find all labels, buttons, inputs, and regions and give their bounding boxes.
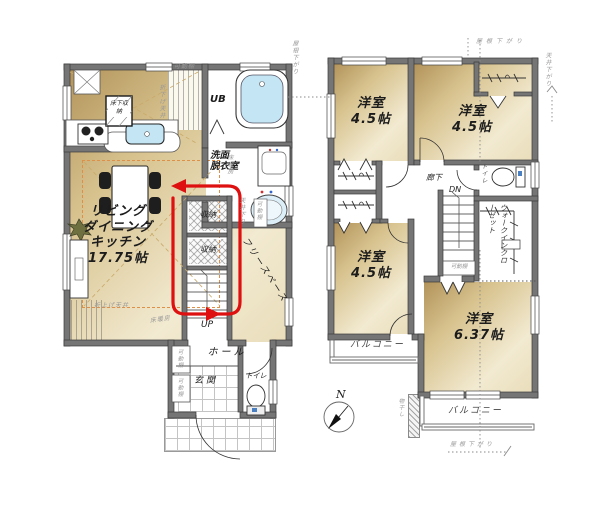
f2-door-arcs <box>386 138 477 336</box>
f1-up-label: UP <box>192 320 222 331</box>
bed4-name: 洋室 <box>434 312 524 328</box>
f2-ann-roof-bottom: 屋根下がり <box>450 441 495 448</box>
f2-corridor-label: 廊下 <box>426 173 442 183</box>
f2-wic-label: ウォークインクローゼット <box>483 204 509 264</box>
f1-ann-ceiling-drop: 天井下り <box>238 197 244 231</box>
f2-bed1-label: 洋室 4.5帖 <box>332 96 410 127</box>
f2-ann-roof-left: 屋根下がり <box>291 40 297 98</box>
washroom-line1: 洗面 <box>210 150 239 161</box>
f1-stove <box>78 124 108 144</box>
floorplan-canvas: リビング ダイニング キッチン 17.75帖 UB 洗面 脱衣室 収納 収納 床… <box>0 0 600 511</box>
f1-entrance-label: 玄関 <box>194 376 218 387</box>
f1-bathtub <box>236 70 288 128</box>
f1-ldk-label: リビング ダイニング キッチン 17.75帖 <box>66 204 170 266</box>
f2-stairs-dn <box>443 192 474 250</box>
f2-toilet-fixture <box>492 167 525 187</box>
f2-ann-monohoshi: 物干し <box>397 398 403 422</box>
bed2-name: 洋室 <box>424 104 520 120</box>
f1-ann-shelf-freespace: 可動棚 <box>255 201 261 227</box>
f1-ann-lowered-ceiling: 折下げ天井 <box>158 84 164 140</box>
bed1-size: 4.5帖 <box>332 112 410 128</box>
compass-icon <box>324 402 354 432</box>
ldk-line1: リビング <box>66 204 170 220</box>
f2-ann-ceiling-right: 天井下がり <box>544 52 550 112</box>
f1-storage-b-label: 収納 <box>189 245 227 255</box>
compass-north-label: N <box>336 388 346 401</box>
f1-ann-shelf-hall-2: 可動棚 <box>176 378 182 402</box>
f2-bed4-label: 洋室 6.37帖 <box>434 312 524 343</box>
bed1-name: 洋室 <box>332 96 410 112</box>
f2-dn-label: DN <box>449 185 461 195</box>
washroom-line2: 脱衣室 <box>210 161 239 172</box>
f1-toilet-label: トイレ <box>243 372 269 380</box>
f1-ub-label: UB <box>210 94 226 106</box>
f1-toilet-fixture <box>247 385 265 415</box>
ldk-size: 17.75帖 <box>66 251 170 267</box>
f2-bed3-label: 洋室 4.5帖 <box>332 250 410 281</box>
f1-hall-label: ホール <box>204 347 250 359</box>
f1-bath-folding-door <box>210 120 224 134</box>
f2-understairs-shelf-label: 可動棚 <box>443 264 475 271</box>
annotation-arrow-bottom <box>504 446 511 456</box>
bed3-name: 洋室 <box>332 250 410 266</box>
ldk-line2: ダイニング <box>66 220 170 236</box>
f1-ann-raised-ceiling: 折上げ天井 <box>94 302 129 309</box>
f2-bed2-label: 洋室 4.5帖 <box>424 104 520 135</box>
f1-storage-a-label: 収納 <box>189 210 227 220</box>
f1-washroom-label: 洗面 脱衣室 <box>210 150 239 173</box>
f1-ann-floor-heating-right: 床暖房 <box>226 154 232 182</box>
f1-ann-shelf-top: 可動棚 <box>174 63 195 70</box>
bed2-size: 4.5帖 <box>424 120 520 136</box>
bed4-size: 6.37帖 <box>434 328 524 344</box>
f2-balcony-rails <box>330 340 534 430</box>
f1-floor-storage-label: 床下収納 <box>108 100 130 117</box>
f1-wall-cabinet <box>74 70 100 94</box>
f2-ann-roof-top: 屋根下がり <box>476 38 526 45</box>
f1-ann-shelf-hall-1: 可動棚 <box>176 349 182 373</box>
f2-balcony-right-label: バルコニー <box>448 406 503 417</box>
f2-toilet-label: トイレ <box>480 163 486 195</box>
bed3-size: 4.5帖 <box>332 266 410 282</box>
ldk-line3: キッチン <box>66 235 170 251</box>
f2-balcony-left-label: バルコニー <box>350 340 405 351</box>
f1-vanity <box>258 146 290 186</box>
